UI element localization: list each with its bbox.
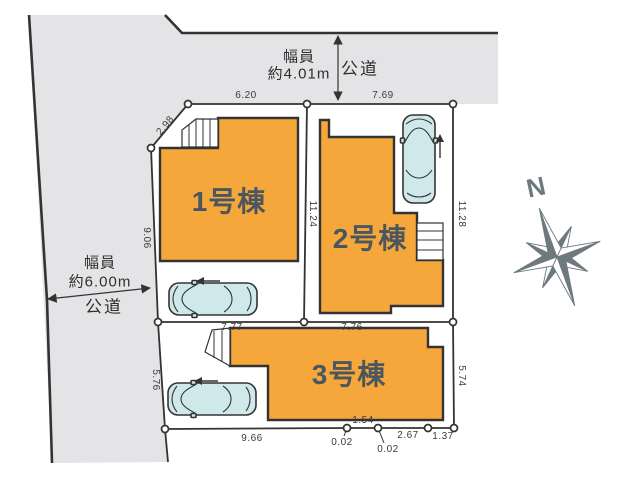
- building-1-entrance-steps: [182, 119, 218, 147]
- dim-bottom-step: 1.54: [352, 416, 373, 426]
- top-road-width-label-line2: 約4.01m: [268, 67, 331, 82]
- dim-bottom-main: 9.66: [241, 434, 262, 444]
- dim-lot-top-left: 6.20: [235, 91, 256, 101]
- dim-mid-left: 7.77: [221, 323, 242, 333]
- left-road-category-label: 公道: [85, 299, 123, 316]
- dim-bottom-right-mid: 2.67: [397, 431, 418, 441]
- dim-lot-top-right: 7.69: [372, 91, 393, 101]
- left-road-width-label-line2: 約6.00m: [69, 275, 132, 290]
- building-1-label: 1号棟: [192, 188, 267, 216]
- dim-left-upper: 9.06: [141, 227, 151, 248]
- dim-left-lower: 5.76: [150, 369, 160, 390]
- compass-rose: [496, 192, 618, 321]
- car-lot2: [401, 115, 438, 203]
- car-lot3: [168, 381, 256, 418]
- road-edge-north: [165, 15, 498, 33]
- car-lot1: [169, 281, 257, 318]
- dim-bottom-right-end: 1.37: [432, 432, 453, 442]
- dim-mid-right: 7.76: [341, 323, 362, 333]
- building-3-label: 3号棟: [312, 361, 387, 389]
- dim-right-lower: 5.74: [456, 365, 466, 386]
- top-road-category-label: 公道: [341, 61, 379, 78]
- building-2-label: 2号棟: [333, 225, 408, 253]
- left-road-width-label-line1: 幅員: [84, 256, 116, 271]
- building-2-entrance-steps: [417, 223, 443, 260]
- top-road-width-label-line1: 幅員: [283, 50, 315, 65]
- site-plan: 幅員 約4.01m 公道 幅員 約6.00m 公道 1号棟 2号棟 3号棟 6.…: [0, 0, 623, 477]
- dim-bottom-notch-right: 0.02: [377, 445, 398, 455]
- dim-right-upper: 11.28: [456, 201, 466, 228]
- dim-bottom-notch-left: 0.02: [331, 438, 352, 448]
- dim-divider-lot1-lot2: 11.24: [307, 201, 317, 228]
- building-3-entrance-steps: [205, 328, 230, 366]
